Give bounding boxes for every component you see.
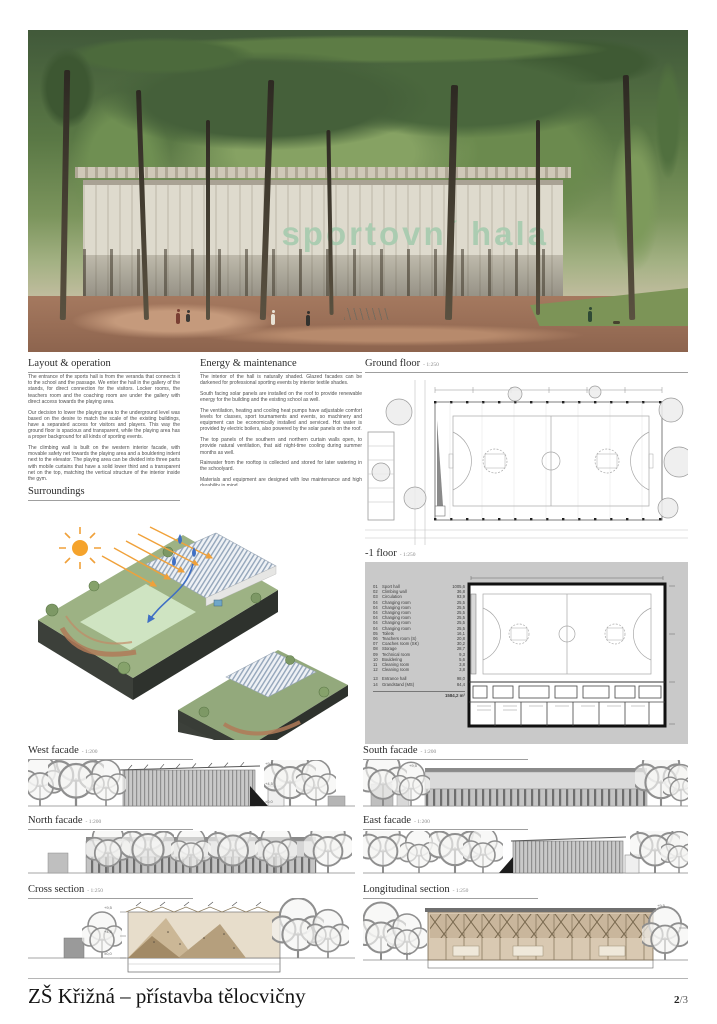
level-label: ±0,0	[265, 800, 273, 804]
surroundings-diagram	[28, 500, 362, 740]
footer-divider	[28, 978, 688, 979]
level-label: +4,5	[265, 782, 273, 786]
legend-total: 1584,2 m²	[373, 691, 465, 699]
ground-floor-heading: Ground floor- 1:250	[365, 358, 688, 373]
layout-text: The entrance of the sports hall is from …	[28, 374, 180, 482]
level-label: ±0,0	[403, 952, 411, 956]
ground-floor-plan	[365, 380, 688, 545]
person-figure	[306, 315, 310, 326]
level-label: +9,5	[657, 904, 665, 908]
paragraph: South facing solar panels are installed …	[200, 391, 362, 403]
page-total: /3	[679, 994, 688, 1006]
east-facade-heading: East facade- 1:200	[363, 815, 528, 830]
person-figure	[176, 313, 180, 324]
north-facade-heading: North facade- 1:200	[28, 815, 193, 830]
building-sign: sportovní hala	[281, 215, 549, 253]
room-legend: 01 Sport hall 1005,6 02 Climbing wall 36…	[373, 584, 465, 734]
bike-rack	[344, 308, 390, 320]
layout-heading: Layout & operation	[28, 358, 180, 373]
west-facade-drawing: +9,5 +4,5 ±0,0	[28, 760, 355, 812]
project-title: ZŠ Křižná – přístavba tělocvičny	[28, 984, 306, 1009]
sun-icon	[59, 527, 101, 569]
level-label: +9,5	[409, 764, 417, 768]
paragraph: The interior of the hall is naturally sh…	[200, 374, 362, 386]
dog-figure	[613, 321, 620, 324]
south-facade-heading: South facade- 1:200	[363, 745, 528, 760]
minus1-floor-plan-block: 01 Sport hall 1005,6 02 Climbing wall 36…	[365, 562, 688, 744]
minus1-floor-heading: -1 floor- 1:250	[365, 548, 688, 563]
level-label: +4,5	[104, 930, 112, 934]
legend-row: 14 Grandstand (MS) 84,4	[373, 682, 465, 687]
south-facade-drawing: +9,5	[363, 760, 688, 812]
roof-truss	[126, 907, 282, 912]
paragraph: Our decision to lower the playing area t…	[28, 410, 180, 441]
cross-section-heading: Cross section- 1:250	[28, 884, 193, 899]
surroundings-heading: Surroundings	[28, 486, 180, 501]
paragraph: The ventilation, heating and cooling hea…	[200, 408, 362, 433]
energy-text: The interior of the hall is naturally sh…	[200, 374, 362, 486]
timber-trusses	[430, 914, 651, 938]
north-facade-drawing	[28, 831, 355, 879]
page-number: 2/3	[674, 994, 688, 1006]
person-figure	[588, 311, 592, 322]
site-block-b	[178, 650, 348, 740]
roof-structure	[75, 167, 571, 178]
tree-trunk	[536, 120, 540, 315]
paragraph: The climbing wall is built on the wester…	[28, 445, 180, 482]
east-facade-drawing	[363, 831, 688, 879]
level-label: ±0,0	[104, 952, 112, 956]
tree-trunk	[206, 120, 210, 320]
long-section-heading: Longitudinal section- 1:250	[363, 884, 538, 899]
long-section-drawing: +9,5 ±0,0	[363, 898, 688, 974]
level-label: +9,5	[265, 762, 273, 766]
west-facade-heading: West facade- 1:200	[28, 745, 193, 760]
paragraph: The entrance of the sports hall is from …	[28, 374, 180, 405]
hero-render: sportovní hala	[28, 30, 688, 352]
paragraph: Materials and equipment are designed wit…	[200, 477, 362, 486]
person-figure	[186, 314, 190, 322]
climbing-wall-strip	[471, 594, 476, 674]
energy-heading: Energy & maintenance	[200, 358, 362, 373]
person-figure	[271, 314, 275, 325]
cross-section-drawing: +9,5 +4,5 ±0,0	[28, 898, 355, 974]
legend-row: 12 Cleaning room 3,8	[373, 667, 465, 672]
sports-hall-building: sportovní hala	[83, 180, 563, 307]
paragraph: Rainwater from the rooftop is collected …	[200, 460, 362, 472]
level-label: +9,5	[104, 906, 112, 910]
paragraph: The top panels of the southern and north…	[200, 437, 362, 456]
water-tank	[214, 600, 222, 606]
minus1-floor-plan	[453, 574, 681, 734]
